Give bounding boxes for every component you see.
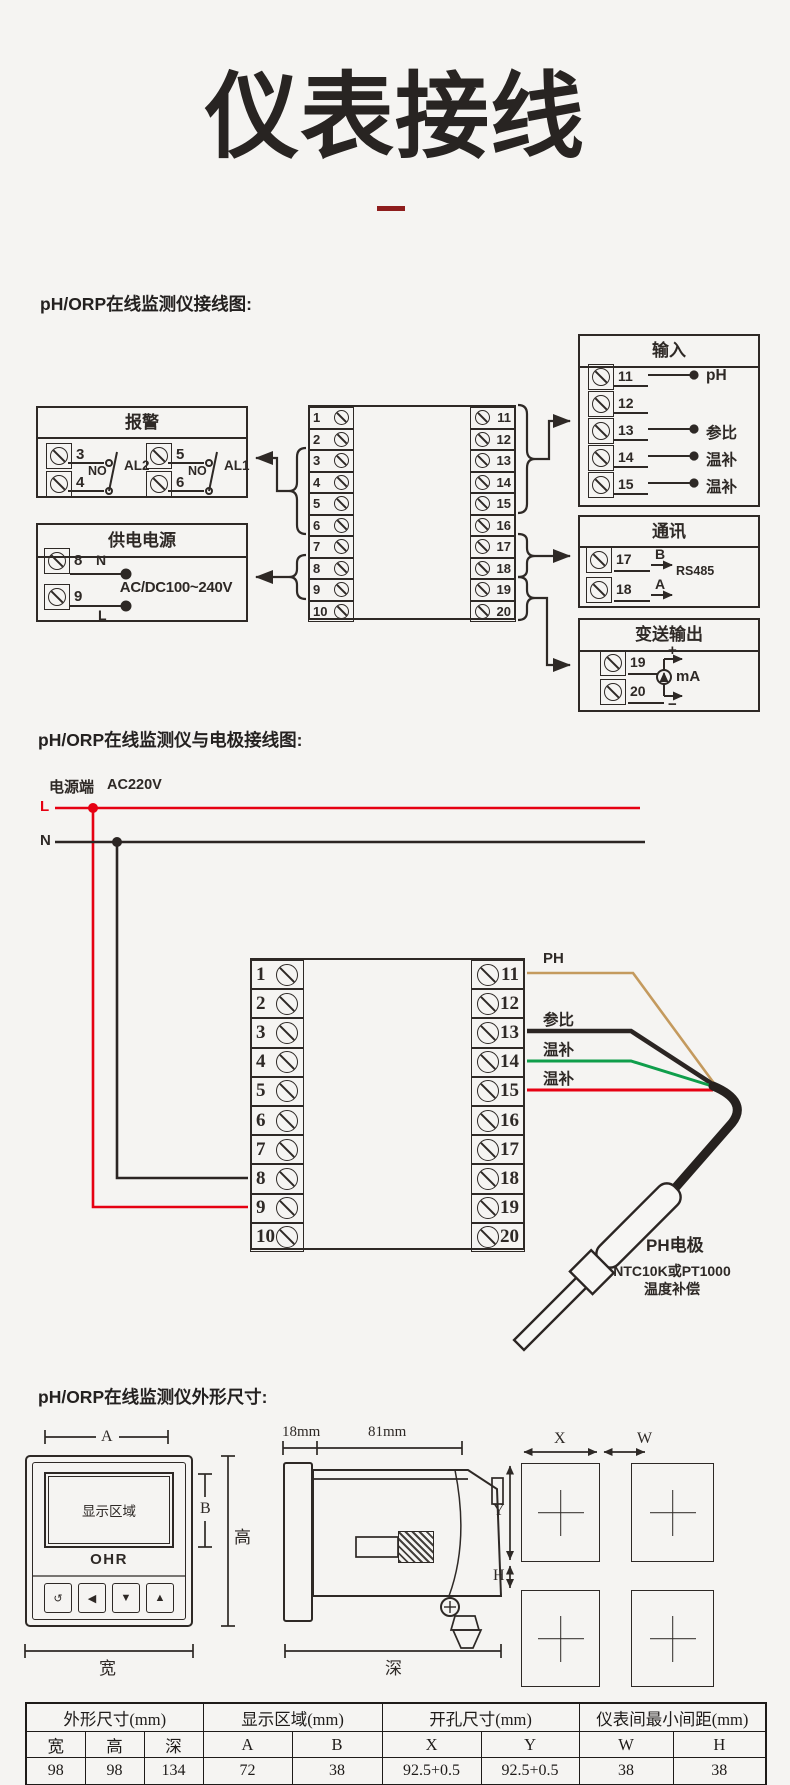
display-area: 显示区域 — [48, 1476, 170, 1544]
comm-box-title: 通讯 — [580, 517, 758, 548]
terminal-number: 8 — [313, 561, 320, 576]
d2-terminal-block: 1 2 3 4 5 6 7 8 — [250, 958, 525, 1250]
plus-label: + — [668, 642, 677, 659]
screw-icon — [276, 1139, 298, 1161]
dim-h-label: H — [493, 1567, 505, 1585]
screw-icon — [50, 447, 68, 465]
screw-icon — [477, 1022, 499, 1044]
live-line-label: L — [40, 798, 49, 815]
screw-icon — [604, 683, 622, 701]
section1-heading: pH/ORP在线监测仪接线图: — [40, 291, 252, 316]
table-group-cell: 仪表间最小间距(mm) — [579, 1703, 766, 1732]
terminal-cell: 6 — [250, 1106, 304, 1135]
terminal-number: 17 — [616, 551, 632, 567]
brand-logo: OHR — [44, 1551, 174, 1568]
terminal-number: 11 — [618, 368, 633, 384]
screw-icon — [334, 582, 349, 597]
page-title: 仪表接线 — [0, 70, 790, 164]
terminal-cell — [146, 471, 172, 497]
source-voltage-label: AC220V — [107, 777, 162, 793]
terminal-cell: 8 — [308, 558, 354, 580]
dim-b-label: B — [200, 1500, 211, 1518]
input-row: 11 pH — [580, 364, 762, 390]
title-underline-decoration — [377, 206, 405, 211]
input-row: 14 温补 — [580, 445, 762, 471]
terminal-cell: 1 — [250, 960, 304, 989]
neutral-line-label: N — [40, 832, 51, 849]
screw-icon — [475, 496, 490, 511]
screw-icon — [276, 1022, 298, 1044]
screw-icon — [334, 475, 349, 490]
dim-depth-label: 深 — [385, 1654, 402, 1679]
terminal-cell: 17 — [470, 536, 516, 558]
panel-button-glyph: ↺ — [53, 1592, 62, 1605]
terminal-cell: 20 — [470, 601, 516, 623]
terminal-cell: 12 — [471, 989, 525, 1018]
screw-icon — [334, 518, 349, 533]
d2-left-terminal-column: 1 2 3 4 5 6 7 8 — [250, 960, 304, 1252]
terminal-number: 3 — [313, 453, 320, 468]
terminal-number: 15 — [500, 1080, 519, 1102]
terminal-cell: 5 — [308, 493, 354, 515]
screw-icon — [334, 453, 349, 468]
screw-icon — [276, 993, 298, 1015]
alarm-relay-group: 3 4 NO AL2 — [46, 442, 146, 498]
input-row: 12 — [580, 391, 762, 417]
terminal-cell — [588, 364, 614, 390]
screw-icon — [276, 1168, 298, 1190]
table-group-cell: 显示区域(mm) — [203, 1703, 382, 1732]
table-value-cell: 38 — [673, 1758, 766, 1785]
signal-label: 参比 — [706, 421, 737, 443]
terminal-number: 16 — [497, 518, 511, 533]
table-group-cell: 外形尺寸(mm) — [26, 1703, 203, 1732]
terminal-number: 12 — [500, 993, 519, 1015]
terminal-number: 3 — [256, 1022, 266, 1044]
cutout-square — [631, 1463, 714, 1562]
terminal-cell: 7 — [308, 536, 354, 558]
dim-81mm-label: 81mm — [368, 1424, 406, 1441]
screw-icon — [592, 422, 610, 440]
wire-label-ph: PH — [543, 950, 564, 967]
terminal-number: 6 — [176, 474, 184, 491]
terminal-number: 18 — [500, 1168, 519, 1190]
terminal-cell: 9 — [250, 1194, 304, 1223]
terminal-number: 15 — [618, 476, 634, 492]
cutout-square — [521, 1463, 600, 1562]
table-value-cell: 98 — [26, 1758, 85, 1785]
front-panel-buttons: ↺◀▼▲ — [44, 1583, 174, 1613]
product-wiring-page: 仪表接线 pH/ORP在线监测仪接线图: 1 2 3 4 5 6 — [0, 0, 790, 1785]
side-view-bezel — [283, 1462, 313, 1622]
terminal-number: 1 — [256, 964, 266, 986]
terminal-cell: 13 — [471, 1018, 525, 1047]
terminal-cell — [586, 577, 612, 603]
screw-icon — [475, 518, 490, 533]
relay-contact-label: NO — [88, 464, 107, 478]
terminal-number: 14 — [497, 475, 511, 490]
screw-icon — [334, 432, 349, 447]
screw-icon — [475, 539, 490, 554]
table-value-cell: 72 — [203, 1758, 292, 1785]
dim-x-label: X — [554, 1430, 566, 1448]
d1-terminal-block: 1 2 3 4 5 6 7 8 — [308, 405, 516, 620]
wire-label-temp2: 温补 — [543, 1067, 574, 1089]
terminal-cell — [600, 650, 626, 676]
screw-icon — [150, 475, 168, 493]
table-group-row: 外形尺寸(mm) 显示区域(mm) 开孔尺寸(mm) 仪表间最小间距(mm) — [26, 1703, 766, 1732]
terminal-cell: 15 — [470, 493, 516, 515]
screw-icon — [592, 476, 610, 494]
section2-heading: pH/ORP在线监测仪与电极接线图: — [38, 727, 302, 752]
alarm-box-title: 报警 — [38, 408, 246, 439]
terminal-cell: 6 — [308, 515, 354, 537]
panel-button[interactable]: ↺ — [44, 1583, 72, 1613]
screw-icon — [590, 581, 608, 599]
terminal-number: 12 — [618, 395, 634, 411]
terminal-number: 19 — [500, 1197, 519, 1219]
screw-icon — [477, 993, 499, 1015]
terminal-cell — [588, 418, 614, 444]
terminal-number: 7 — [313, 539, 320, 554]
input-box: 输入 11 pH 12 13 参比 14 温补 15 温补 — [578, 334, 760, 507]
terminal-number: 4 — [76, 474, 84, 491]
screw-icon — [475, 475, 490, 490]
terminal-number: 20 — [500, 1226, 519, 1248]
power-source-label: 电源端 — [49, 776, 94, 797]
terminal-number: 2 — [313, 432, 320, 447]
signal-label: 温补 — [706, 475, 737, 497]
screw-icon — [334, 410, 349, 425]
screw-icon — [477, 1226, 499, 1248]
screw-icon — [592, 368, 610, 386]
terminal-cell: 11 — [470, 407, 516, 429]
screw-icon — [477, 1197, 499, 1219]
screw-icon — [475, 453, 490, 468]
screw-icon — [50, 475, 68, 493]
terminal-number: 6 — [313, 518, 320, 533]
d1-right-terminal-column: 11 12 13 14 15 16 17 18 — [470, 407, 516, 622]
terminal-number: 16 — [500, 1110, 519, 1132]
terminal-cell: 14 — [471, 1048, 525, 1077]
table-header-cell: A — [203, 1732, 292, 1758]
table-header-cell: B — [292, 1732, 382, 1758]
table-header-row: 宽高深ABXYWH — [26, 1732, 766, 1758]
input-row: 13 参比 — [580, 418, 762, 444]
table-value-cell: 38 — [579, 1758, 673, 1785]
terminal-cell — [586, 547, 612, 573]
terminal-cell: 9 — [308, 579, 354, 601]
terminal-number: 9 — [256, 1197, 266, 1219]
d1-left-terminal-column: 1 2 3 4 5 6 7 8 — [308, 407, 354, 622]
terminal-number: 7 — [256, 1139, 266, 1161]
dim-a-label: A — [101, 1428, 113, 1446]
terminal-number: 5 — [176, 446, 184, 463]
table-header-cell: Y — [481, 1732, 579, 1758]
terminal-number: 20 — [630, 683, 646, 699]
terminal-number: 11 — [497, 410, 511, 425]
screw-icon — [475, 410, 490, 425]
terminal-number: 17 — [497, 539, 511, 554]
terminal-number: 9 — [313, 582, 320, 597]
panel-button[interactable]: ◀ — [78, 1583, 106, 1613]
terminal-cell: 3 — [308, 450, 354, 472]
screw-icon — [475, 582, 490, 597]
terminal-number: 1 — [313, 410, 320, 425]
terminal-number: 2 — [256, 993, 266, 1015]
table-group-cell: 开孔尺寸(mm) — [382, 1703, 579, 1732]
table-value-cell: 92.5+0.5 — [382, 1758, 481, 1785]
terminal-number: 20 — [497, 604, 511, 619]
table-value-cell: 38 — [292, 1758, 382, 1785]
alarm-relay-group: 5 6 NO AL1 — [146, 442, 246, 498]
terminal-number: 3 — [76, 446, 84, 463]
section3-heading: pH/ORP在线监测仪外形尺寸: — [38, 1384, 267, 1409]
table-value-cell: 134 — [144, 1758, 203, 1785]
ph-electrode — [508, 1086, 738, 1356]
terminal-cell: 20 — [471, 1223, 525, 1252]
terminal-cell: 5 — [250, 1077, 304, 1106]
cutout-square — [631, 1590, 714, 1687]
terminal-cell: 10 — [308, 601, 354, 623]
terminal-number: 13 — [497, 453, 511, 468]
panel-button-glyph: ▼ — [121, 1592, 132, 1604]
screw-icon — [477, 1168, 499, 1190]
screw-icon — [334, 539, 349, 554]
terminal-cell — [46, 471, 72, 497]
terminal-number: 19 — [630, 654, 646, 670]
alarm-output-label: AL1 — [224, 458, 250, 473]
terminal-cell: 4 — [250, 1048, 304, 1077]
screw-icon — [592, 395, 610, 413]
screw-icon — [477, 964, 499, 986]
screw-icon — [475, 432, 490, 447]
terminal-number: 12 — [497, 432, 511, 447]
screw-icon — [592, 449, 610, 467]
screw-icon — [604, 654, 622, 672]
minus-label: − — [668, 696, 677, 713]
dim-w-label: W — [637, 1430, 652, 1448]
terminal-number: 13 — [500, 1022, 519, 1044]
electrode-note: NTC10K或PT1000 温度补偿 — [597, 1262, 747, 1298]
terminal-cell — [588, 391, 614, 417]
terminal-cell: 18 — [471, 1164, 525, 1193]
signal-label: 温补 — [706, 448, 737, 470]
alarm-box: 报警 3 4 NO AL2 5 6 NO AL1 — [36, 406, 248, 498]
panel-button-glyph: ▲ — [155, 1592, 166, 1604]
rs485-b-label: B — [655, 546, 665, 562]
screw-icon — [276, 1110, 298, 1132]
terminal-number: 14 — [618, 449, 634, 465]
terminal-cell: 19 — [470, 579, 516, 601]
terminal-number: 4 — [256, 1051, 266, 1073]
terminal-number: 13 — [618, 422, 634, 438]
screw-icon — [276, 1080, 298, 1102]
terminal-number: 5 — [313, 496, 320, 511]
screw-icon — [477, 1110, 499, 1132]
terminal-number: 10 — [256, 1226, 275, 1248]
terminal-number: 11 — [501, 964, 519, 986]
d2-right-terminal-column: 11 12 13 14 15 16 17 18 — [471, 960, 525, 1252]
terminal-cell — [44, 548, 70, 574]
terminal-cell: 16 — [470, 515, 516, 537]
dim-18mm-label: 18mm — [282, 1424, 320, 1441]
wire-label-temp1: 温补 — [543, 1038, 574, 1060]
screw-icon — [276, 1226, 298, 1248]
terminal-cell: 10 — [250, 1223, 304, 1252]
dim-width-label: 宽 — [99, 1654, 116, 1679]
table-header-cell: 深 — [144, 1732, 203, 1758]
screw-icon — [477, 1051, 499, 1073]
rs485-a-label: A — [655, 576, 665, 592]
live-label: L — [98, 607, 107, 623]
terminal-number: 4 — [313, 475, 320, 490]
terminal-number: 17 — [500, 1139, 519, 1161]
electrode-name: PH电极 — [646, 1231, 704, 1256]
terminal-number: 6 — [256, 1110, 266, 1132]
cutout-square — [521, 1590, 600, 1687]
table-value-cell: 98 — [85, 1758, 144, 1785]
terminal-cell: 2 — [250, 989, 304, 1018]
terminal-cell — [146, 443, 172, 469]
screw-icon — [334, 496, 349, 511]
screw-icon — [150, 447, 168, 465]
terminal-cell: 1 — [308, 407, 354, 429]
terminal-cell: 7 — [250, 1135, 304, 1164]
terminal-cell: 4 — [308, 472, 354, 494]
screw-icon — [276, 1197, 298, 1219]
terminal-cell: 19 — [471, 1194, 525, 1223]
electrode-note-line2: 温度补偿 — [597, 1280, 747, 1298]
terminal-number: 14 — [500, 1051, 519, 1073]
screw-icon — [475, 561, 490, 576]
terminal-number: 9 — [74, 588, 82, 605]
terminal-cell — [44, 584, 70, 610]
table-header-cell: X — [382, 1732, 481, 1758]
terminal-cell: 8 — [250, 1164, 304, 1193]
dim-y-label: Y — [493, 1502, 505, 1520]
screw-icon — [590, 551, 608, 569]
screw-icon — [334, 604, 349, 619]
wire-label-ref: 参比 — [543, 1008, 574, 1030]
panel-button[interactable]: ▼ — [112, 1583, 140, 1613]
terminal-number: 10 — [313, 604, 327, 619]
table-value-cell: 92.5+0.5 — [481, 1758, 579, 1785]
mounting-clamp-hatch — [398, 1531, 434, 1563]
terminal-cell: 14 — [470, 472, 516, 494]
dim-height-label: 高 — [234, 1523, 251, 1548]
terminal-cell: 17 — [471, 1135, 525, 1164]
ma-unit-label: mA — [676, 668, 700, 685]
terminal-cell — [46, 443, 72, 469]
screw-icon — [48, 552, 66, 570]
terminal-cell: 13 — [470, 450, 516, 472]
panel-button-glyph: ◀ — [88, 1592, 96, 1605]
terminal-cell: 18 — [470, 558, 516, 580]
panel-button[interactable]: ▲ — [146, 1583, 174, 1613]
screw-icon — [48, 588, 66, 606]
side-view — [283, 1441, 503, 1658]
table-header-cell: W — [579, 1732, 673, 1758]
terminal-number: 18 — [616, 581, 632, 597]
screw-icon — [477, 1080, 499, 1102]
terminal-number: 15 — [497, 496, 511, 511]
signal-label: pH — [706, 367, 727, 385]
neutral-label: N — [96, 552, 106, 568]
screw-icon — [477, 1139, 499, 1161]
input-row: 15 温补 — [580, 472, 762, 498]
relay-contact-label: NO — [188, 464, 207, 478]
screw-icon — [334, 561, 349, 576]
terminal-number: 18 — [497, 561, 511, 576]
display-area-label: 显示区域 — [82, 1500, 136, 1520]
terminal-cell: 3 — [250, 1018, 304, 1047]
terminal-cell — [588, 445, 614, 471]
terminal-number: 8 — [74, 552, 82, 569]
electrode-note-line1: NTC10K或PT1000 — [597, 1262, 747, 1280]
terminal-cell: 11 — [471, 960, 525, 989]
terminal-number: 8 — [256, 1168, 266, 1190]
table-header-cell: 宽 — [26, 1732, 85, 1758]
dimensions-table: 外形尺寸(mm) 显示区域(mm) 开孔尺寸(mm) 仪表间最小间距(mm) 宽… — [25, 1702, 767, 1785]
terminal-cell: 2 — [308, 429, 354, 451]
terminal-cell: 15 — [471, 1077, 525, 1106]
protocol-label: RS485 — [676, 564, 714, 578]
terminal-cell: 16 — [471, 1106, 525, 1135]
terminal-number: 5 — [256, 1080, 266, 1102]
supply-voltage: AC/DC100~240V — [110, 579, 242, 596]
terminal-number: 19 — [497, 582, 511, 597]
terminal-cell: 12 — [470, 429, 516, 451]
screw-icon — [276, 964, 298, 986]
table-value-row: 9898134723892.5+0.592.5+0.53838 — [26, 1758, 766, 1785]
table-header-cell: 高 — [85, 1732, 144, 1758]
screw-icon — [276, 1051, 298, 1073]
screw-icon — [475, 604, 490, 619]
terminal-cell — [600, 679, 626, 705]
table-header-cell: H — [673, 1732, 766, 1758]
terminal-cell — [588, 472, 614, 498]
